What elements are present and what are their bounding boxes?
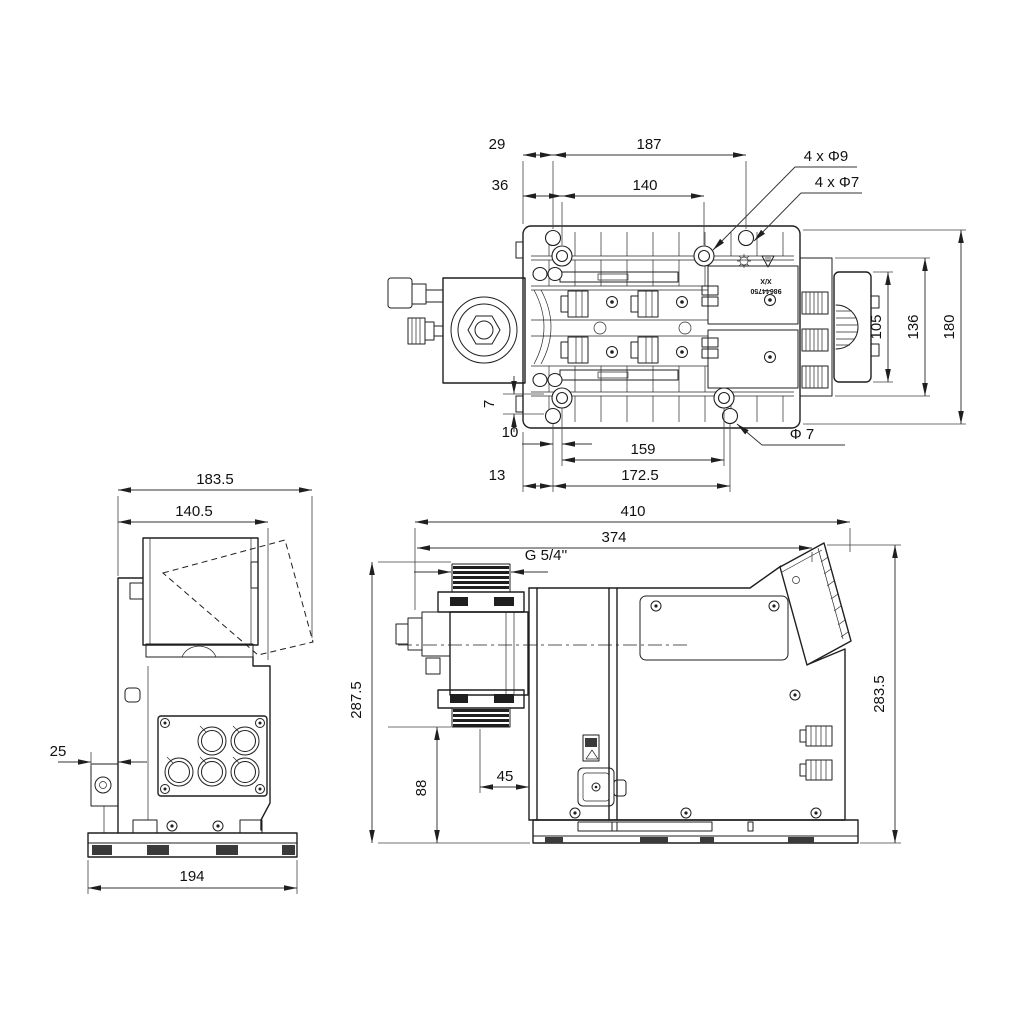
plate-screws: [594, 295, 776, 363]
hole-dia7: [723, 409, 738, 424]
dimensional-drawing: 98644750 X/X: [0, 0, 1024, 1024]
hole-dia7: [546, 409, 561, 424]
dim-36: 36: [492, 177, 509, 194]
pump-head-top: [388, 278, 525, 383]
clamp: [561, 337, 588, 363]
dim-187: 187: [636, 136, 661, 153]
top-view: 98644750 X/X: [388, 136, 966, 492]
body-screws: [651, 601, 800, 700]
side-view: 183.5 140.5 25 194: [50, 471, 313, 894]
front-base: [533, 808, 858, 843]
dim-287-5: 287.5: [348, 681, 365, 719]
dim-140: 140: [632, 177, 657, 194]
dim-13: 13: [489, 467, 506, 484]
dim-29: 29: [489, 136, 506, 153]
cable-gland-front: [396, 612, 450, 674]
open-cover-outline: [163, 540, 313, 655]
dim-88: 88: [413, 780, 430, 797]
dim-183-5: 183.5: [196, 471, 234, 488]
dim-7: 7: [481, 400, 498, 408]
hole-dia9: [552, 246, 572, 266]
connector-panel: [158, 716, 267, 796]
slot-hole: [548, 268, 562, 281]
dim-45: 45: [497, 768, 514, 785]
power-plug: [578, 768, 626, 806]
dim-172-5: 172.5: [621, 467, 659, 484]
label-4x-dia7: 4 x Φ7: [815, 174, 860, 191]
hole-dia7: [546, 231, 561, 246]
clamp-knob: [802, 292, 828, 314]
thread-top: [452, 564, 510, 592]
label-thread-g54: G 5/4'': [525, 547, 568, 564]
slot-hole: [548, 374, 562, 387]
cable-connectors: [165, 727, 259, 786]
dim-dia7: Φ 7: [790, 426, 814, 443]
hole-dia9: [714, 388, 734, 408]
slot-hole: [533, 268, 547, 281]
side-body: [118, 538, 313, 833]
front-dimensions: 410 374 G 5/4'' 287.5 88 45 283.5: [348, 503, 901, 843]
wall-mount-lug: [91, 764, 118, 833]
warning-triangle-icon: [762, 256, 774, 267]
hole-dia9: [694, 246, 714, 266]
control-panel-front: [780, 543, 851, 665]
drawing-canvas: 98644750 X/X: [0, 0, 1024, 1024]
dim-194: 194: [179, 868, 204, 885]
marking-serial: 98644750: [750, 287, 781, 294]
hole-dia7: [739, 231, 754, 246]
clamp: [631, 291, 658, 317]
gear-icon: [737, 254, 751, 268]
clamp: [631, 337, 658, 363]
front-view: 410 374 G 5/4'' 287.5 88 45 283.5: [348, 503, 901, 843]
dim-136: 136: [905, 314, 922, 339]
thread-bottom: [452, 708, 510, 727]
label-4x-dia9: 4 x Φ9: [804, 148, 849, 165]
clamp-knobs-front: [800, 726, 832, 780]
dim-283-5: 283.5: [871, 675, 888, 713]
marking-plate: 98644750 X/X: [702, 266, 798, 388]
dim-159: 159: [630, 441, 655, 458]
dim-180: 180: [941, 314, 958, 339]
clamp-knob: [802, 366, 828, 388]
dim-25: 25: [50, 743, 67, 760]
pump-body-front: [529, 543, 851, 820]
dim-374: 374: [601, 529, 626, 546]
dim-105: 105: [868, 314, 885, 339]
dim-10: 10: [502, 424, 519, 441]
adjust-dial: [836, 305, 858, 349]
plate-clamps: [561, 291, 658, 363]
slot-hole: [533, 374, 547, 387]
dim-140-5: 140.5: [175, 503, 213, 520]
bleed-knob-top: [408, 318, 443, 344]
warning-label: [583, 735, 599, 761]
mounting-holes: [533, 231, 754, 424]
side-dimensions: 183.5 140.5 25 194: [50, 471, 312, 894]
clamp-knob: [802, 329, 828, 351]
side-base: [88, 820, 297, 857]
hole-dia9: [552, 388, 572, 408]
clamp: [561, 291, 588, 317]
top-dimensions: 29 187 36 140 4 x Φ9 4 x Φ7 180 136 105 …: [481, 136, 966, 492]
cable-gland-top: [388, 278, 443, 308]
dim-410: 410: [620, 503, 645, 520]
valve-connection: [451, 297, 517, 363]
marking-version: X/X: [760, 277, 772, 284]
